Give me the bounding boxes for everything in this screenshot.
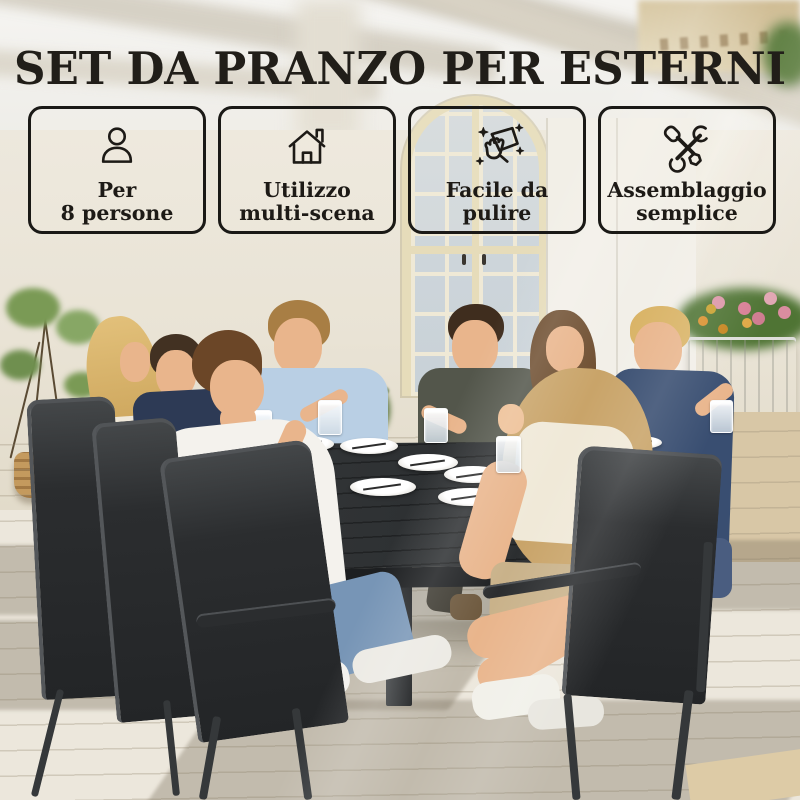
water-glass [318,400,342,435]
badge-label: Assemblaggiosemplice [607,179,766,225]
face [634,322,682,376]
plate [340,438,398,454]
badge-label: Facile dapulire [446,179,549,225]
water-glass [496,436,521,473]
badge-label: Utilizzomulti-scena [239,179,374,225]
cleaning-wipe-icon [468,119,526,175]
window-handle [462,254,466,265]
badge-easy-clean: Facile dapulire [408,106,586,234]
person-icon [91,119,143,175]
plate [350,478,416,496]
orange-flowers [698,316,708,326]
water-glass [710,400,733,433]
feature-badges: Per8 persone Utilizzomulti-scena [28,106,776,234]
face [546,326,584,372]
water-glass [424,408,448,443]
house-icon [281,119,333,175]
badge-seats: Per8 persone [28,106,206,234]
face [274,318,322,374]
badge-multi-scene: Utilizzomulti-scena [218,106,396,234]
product-image: SET DA PRANZO PER ESTERNI Per8 persone [0,0,800,800]
plant-leaves [0,350,40,380]
face [498,404,524,434]
page-title: SET DA PRANZO PER ESTERNI [12,42,788,95]
face [120,342,150,382]
pink-flowers [712,296,725,309]
tools-icon [660,119,714,175]
window-handle [482,254,486,265]
plant-leaves [6,288,60,328]
face [452,320,498,374]
badge-assembly: Assemblaggiosemplice [598,106,776,234]
window-bar [402,246,548,254]
badge-label: Per8 persone [61,179,174,225]
